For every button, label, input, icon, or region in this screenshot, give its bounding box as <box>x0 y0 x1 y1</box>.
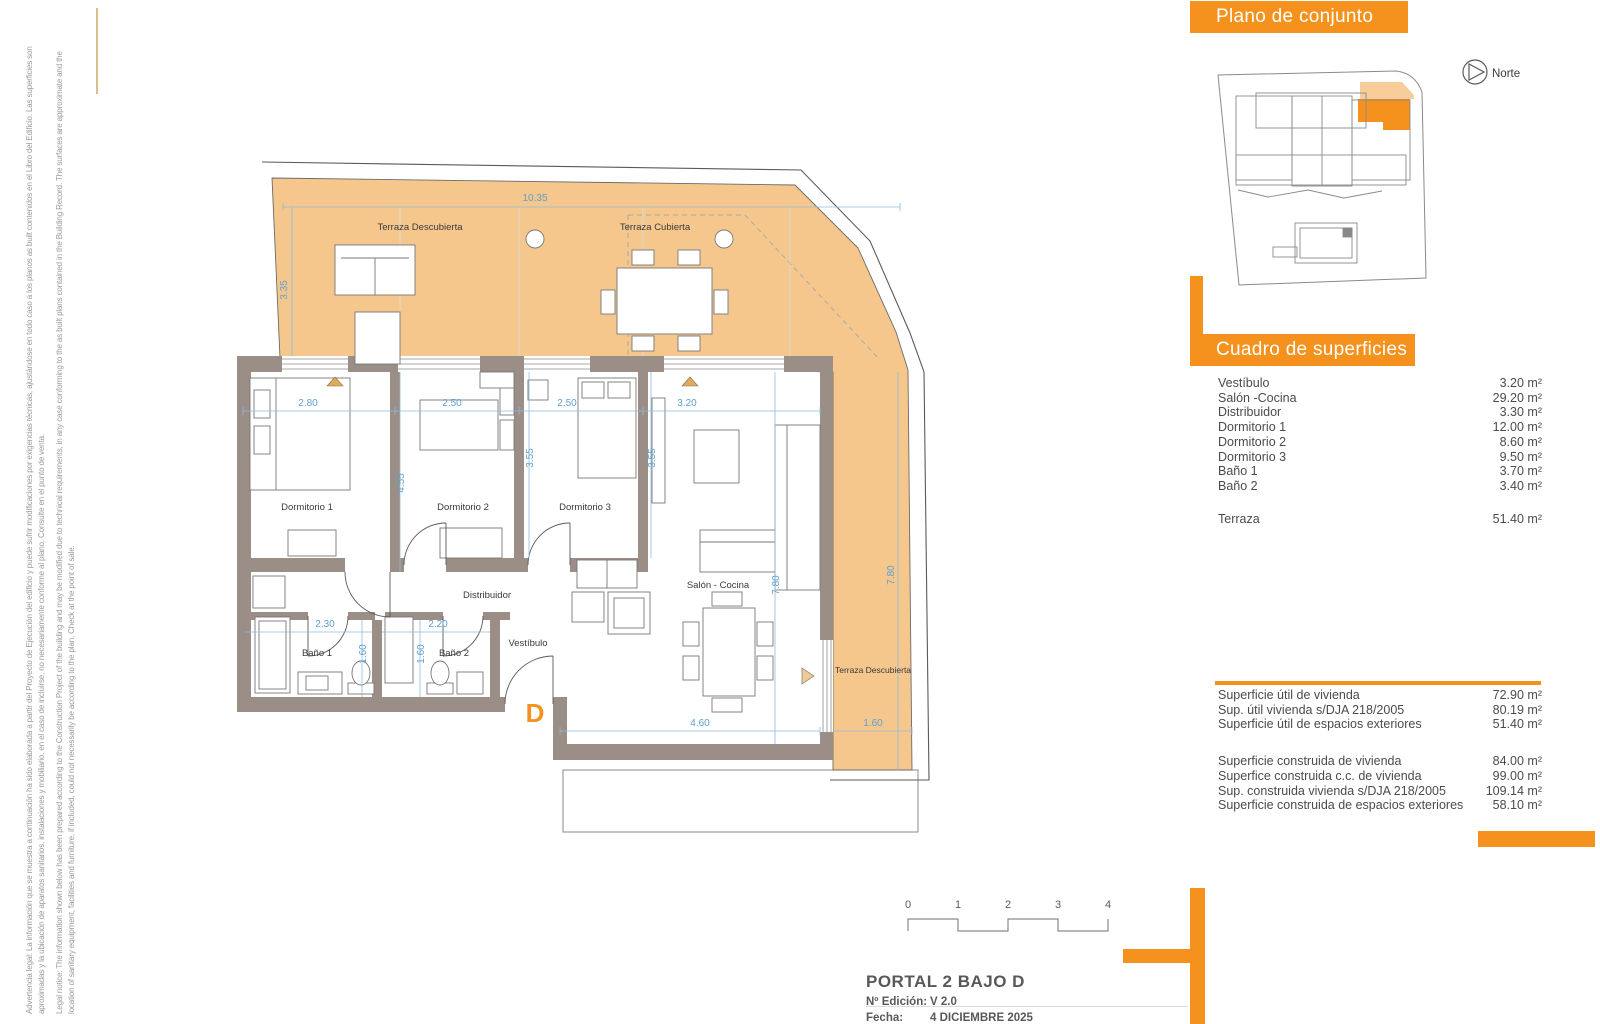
label-vestibulo: Vestíbulo <box>508 638 547 649</box>
dim-d1-height: 4.55 <box>396 473 407 493</box>
dim-salon-bottom-width: 4.60 <box>690 718 710 729</box>
summary-table: Superficie útil de vivienda72.90 m² Sup.… <box>1218 688 1542 813</box>
furniture-kitchen <box>572 592 650 634</box>
date-label: Fecha: <box>866 1012 930 1024</box>
table-row: Vestíbulo3.20 m² <box>1218 376 1542 391</box>
summary-row: Superficie útil de espacios exteriores51… <box>1218 717 1542 732</box>
site-panel-header: Plano de conjunto <box>1190 1 1408 33</box>
table-row: Baño 13.70 m² <box>1218 464 1542 479</box>
legal-disclaimer: Advertencia legal: La información que se… <box>24 22 78 1014</box>
dim-top-width: 10.35 <box>522 193 547 204</box>
dim-bano2-width: 2.20 <box>428 619 448 630</box>
title-block: PORTAL 2 BAJO D Nº Edición: V 2.0 Fecha:… <box>866 972 1033 1024</box>
table-row: Dormitorio 112.00 m² <box>1218 420 1542 435</box>
table-row: Baño 23.40 m² <box>1218 479 1542 494</box>
furniture-terrace-table <box>355 312 400 364</box>
label-bano-2: Baño 2 <box>439 648 469 659</box>
summary-row: Superficie construida de espacios exteri… <box>1218 798 1542 813</box>
furniture-bed-dorm2 <box>420 385 514 450</box>
site-lower-building <box>1273 223 1357 263</box>
sheet-title: PORTAL 2 BAJO D <box>866 972 1033 992</box>
column-1 <box>526 230 544 248</box>
areas-panel-header: Cuadro de superficies <box>1190 334 1415 366</box>
dim-d2-height: 3.55 <box>525 448 536 468</box>
dim-terrace-bottom-width: 1.60 <box>863 718 883 729</box>
svg-text:3: 3 <box>1055 899 1061 911</box>
label-terraza-cubierta: Terraza Cubierta <box>620 222 691 233</box>
dim-d1-width: 2.80 <box>298 398 318 409</box>
furniture-chest-dorm2 <box>440 528 502 558</box>
dim-top-left-height: 3.35 <box>279 280 290 300</box>
floor-plan: 10.35 3.35 2.80 2.50 2.50 3.20 4.55 3.55… <box>225 155 965 855</box>
north-compass-icon <box>1463 60 1487 84</box>
table-row: Dormitorio 39.50 m² <box>1218 450 1542 465</box>
svg-text:4: 4 <box>1105 899 1111 911</box>
dim-salon-width: 3.20 <box>677 398 697 409</box>
furniture-coffee-table <box>694 430 739 483</box>
dim-d3-width: 2.50 <box>557 398 577 409</box>
date-row: Fecha: 4 DICIEMBRE 2025 <box>866 1012 1033 1024</box>
svg-text:2: 2 <box>1005 899 1011 911</box>
summary-bottom-bar <box>1478 831 1595 847</box>
furniture-bed-dorm1 <box>250 378 350 490</box>
areas-table: Vestíbulo3.20 m² Salón -Cocina29.20 m² D… <box>1218 376 1542 526</box>
label-terraza-descubierta-top: Terraza Descubierta <box>377 222 463 233</box>
furniture-table-dorm3 <box>528 380 548 400</box>
svg-text:1: 1 <box>955 899 961 911</box>
legal-es-line2: aproximadas y la ubicación de aparatos s… <box>36 22 48 1014</box>
furniture-bed-dorm3 <box>578 378 636 478</box>
table-row: Salón -Cocina29.20 m² <box>1218 391 1542 406</box>
door-direction-triangle <box>802 668 814 684</box>
label-dormitorio-2: Dormitorio 2 <box>437 502 489 513</box>
column-2 <box>715 230 733 248</box>
label-salon-cocina: Salón - Cocina <box>687 580 750 591</box>
svg-text:0: 0 <box>905 899 911 911</box>
scale-bar-ticks: 0 1 2 3 4 <box>905 899 1111 911</box>
furniture-closet-dorm1 <box>288 530 336 556</box>
margin-tick-line <box>96 8 98 94</box>
furniture-salon-dining <box>683 592 773 712</box>
furniture-terrace-sofa <box>335 245 415 295</box>
accent-t-arm <box>1123 949 1190 963</box>
cuadro-l-bar <box>1190 276 1203 338</box>
dim-bano1-width: 2.30 <box>315 619 335 630</box>
furniture-wardrobe-dorm3 <box>577 560 637 588</box>
summary-row: Superficie construida de vivienda84.00 m… <box>1218 754 1542 769</box>
summary-row: Sup. útil vivienda s/DJA 218/200580.19 m… <box>1218 703 1542 718</box>
summary-row: Superficie útil de vivienda72.90 m² <box>1218 688 1542 703</box>
entry-triangle-marker-2 <box>682 377 698 386</box>
table-row: Distribuidor3.30 m² <box>1218 405 1542 420</box>
summary-row: Superfice construida c.c. de vivienda99.… <box>1218 769 1542 784</box>
site-unit-terrace-highlight <box>1360 82 1414 99</box>
legal-es-line1: Advertencia legal: La información que se… <box>24 22 36 1014</box>
label-terraza-descubierta-right: Terraza Descubierta <box>835 665 911 675</box>
label-dormitorio-3: Dormitorio 3 <box>559 502 611 513</box>
date-value: 4 DICIEMBRE 2025 <box>930 1012 1033 1024</box>
unit-letter: D <box>526 698 545 728</box>
patio-step-outline <box>563 770 918 832</box>
dim-bano2-height: 1.60 <box>416 644 427 664</box>
site-panel-title: Plano de conjunto <box>1216 6 1373 28</box>
summary-top-rule <box>1215 681 1541 685</box>
scale-bar: 0 1 2 3 4 <box>890 892 1130 940</box>
dim-terrace-right-height: 7.80 <box>886 565 897 585</box>
legal-en-line1: Legal notice: The information shown belo… <box>54 22 66 1014</box>
site-plan: Norte <box>1180 45 1600 295</box>
summary-row: Sup. construida vivienda s/DJA 218/20051… <box>1218 784 1542 799</box>
furniture-wardrobe-dorm2 <box>480 372 514 388</box>
dim-bano1-height: 1.60 <box>358 644 369 664</box>
scale-bar-line <box>908 919 1108 931</box>
dim-d2-width: 2.50 <box>442 398 462 409</box>
dim-d3-height: 3.55 <box>647 448 658 468</box>
areas-panel-title: Cuadro de superficies <box>1216 339 1407 361</box>
title-block-separator <box>866 1006 1188 1007</box>
legal-en-line2: location of sanitary equipment, faciliti… <box>66 22 78 1014</box>
table-row: Dormitorio 28.60 m² <box>1218 435 1542 450</box>
label-bano-1: Baño 1 <box>302 648 332 659</box>
label-distribuidor: Distribuidor <box>463 590 511 601</box>
north-label: Norte <box>1492 68 1520 80</box>
dim-salon-height: 7.80 <box>771 575 782 595</box>
furniture-closet-hall <box>253 576 285 608</box>
table-row-terraza: Terraza51.40 m² <box>1218 512 1542 527</box>
label-dormitorio-1: Dormitorio 1 <box>281 502 333 513</box>
accent-t-vertical <box>1190 888 1205 1024</box>
plan-sheet-page: { "legal": { "es_line1": "Advertencia le… <box>0 0 1600 1024</box>
